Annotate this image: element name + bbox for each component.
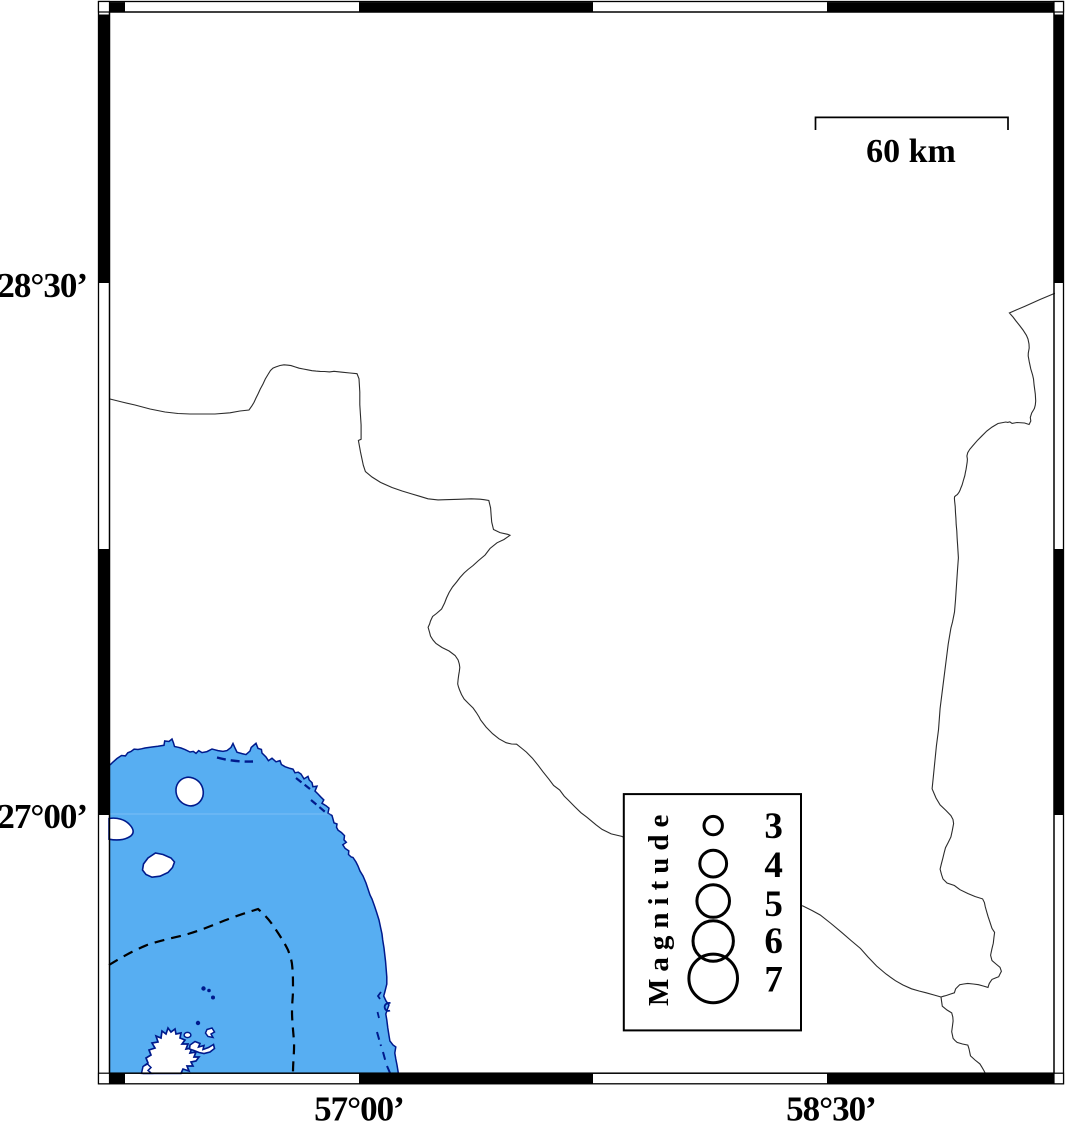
svg-text:Magnitude: Magnitude [643,808,675,1006]
svg-text:3: 3 [764,806,783,847]
svg-text:60 km: 60 km [866,133,956,170]
svg-text:28°30’: 28°30’ [0,266,87,305]
svg-text:27°00’: 27°00’ [0,797,87,836]
svg-text:5: 5 [764,884,783,925]
svg-text:4: 4 [764,845,783,886]
svg-text:7: 7 [764,960,783,1001]
svg-text:57°00’: 57°00’ [314,1090,404,1122]
svg-text:6: 6 [764,921,783,962]
svg-text:58°30’: 58°30’ [786,1090,876,1122]
